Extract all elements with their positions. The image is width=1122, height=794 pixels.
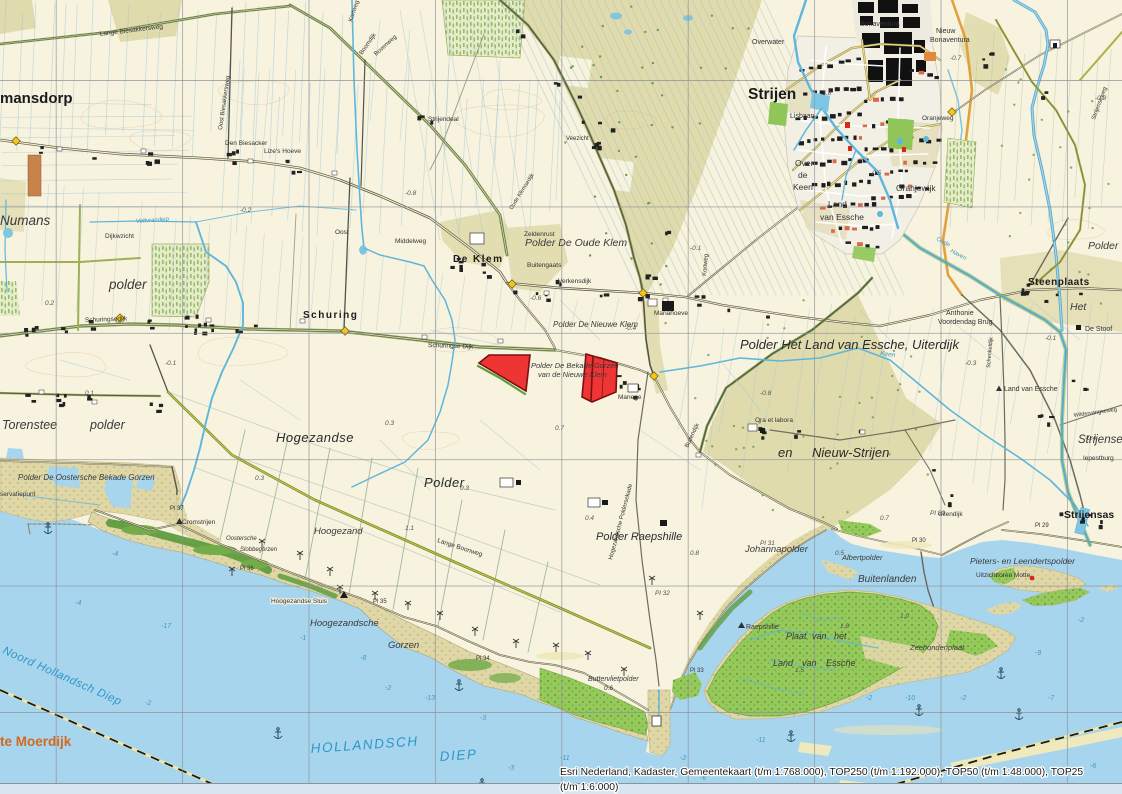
svg-text:Cromstrijen: Cromstrijen: [182, 519, 216, 526]
svg-text:-10: -10: [905, 695, 915, 702]
svg-text:Polder De Nieuwe Klem: Polder De Nieuwe Klem: [553, 320, 638, 329]
svg-text:-2: -2: [960, 695, 966, 702]
svg-text:Manege: Manege: [618, 394, 642, 401]
svg-text:Numans: Numans: [0, 213, 51, 228]
svg-text:Polder Het Land van Essche, Ui: Polder Het Land van Essche, Uiterdijk: [740, 337, 960, 352]
svg-text:-1.8: -1.8: [820, 90, 832, 97]
svg-text:0.3: 0.3: [255, 475, 264, 482]
svg-text:Buitengaats: Buitengaats: [527, 262, 562, 269]
svg-text:De Klem: De Klem: [453, 254, 504, 265]
svg-text:0.6: 0.6: [604, 685, 613, 692]
svg-text:Strijensas: Strijensas: [1064, 509, 1114, 521]
svg-text:-0.7: -0.7: [950, 55, 962, 62]
svg-text:-0.1: -0.1: [165, 360, 177, 367]
svg-text:Land: Land: [773, 658, 794, 668]
svg-text:Esri Nederland, Kadaster, Geme: Esri Nederland, Kadaster, Gemeentekaart …: [560, 767, 1083, 778]
svg-text:1.0: 1.0: [900, 613, 909, 620]
svg-text:Raepshille: Raepshille: [746, 624, 779, 631]
svg-text:Uilendijk: Uilendijk: [938, 511, 963, 518]
svg-text:1.8: 1.8: [840, 623, 849, 630]
svg-text:Veezicht: Veezicht: [566, 136, 589, 142]
svg-text:0.7: 0.7: [880, 515, 889, 522]
svg-text:Verkensdijk: Verkensdijk: [558, 278, 592, 285]
svg-text:Den Biesacker: Den Biesacker: [225, 140, 268, 147]
svg-text:Schuring: Schuring: [303, 310, 358, 321]
svg-text:Pl 36: Pl 36: [240, 566, 254, 572]
svg-text:Zeehondenplaat: Zeehondenplaat: [909, 643, 965, 652]
svg-text:-0.8: -0.8: [760, 390, 772, 397]
svg-text:de: de: [798, 170, 808, 180]
svg-text:van: van: [802, 658, 817, 668]
svg-text:Zeldenrust: Zeldenrust: [524, 231, 555, 238]
svg-text:Bonaventura: Bonaventura: [860, 21, 900, 28]
svg-text:en: en: [778, 445, 792, 460]
svg-text:-3: -3: [508, 765, 514, 772]
svg-text:Polder: Polder: [1088, 240, 1119, 252]
svg-text:Lisbaan: Lisbaan: [790, 113, 815, 120]
svg-text:-0.3: -0.3: [965, 360, 977, 367]
svg-text:Pl 32: Pl 32: [655, 590, 670, 597]
svg-text:Torenstee: Torenstee: [2, 418, 57, 432]
svg-text:0.3: 0.3: [385, 420, 394, 427]
svg-text:0.2: 0.2: [45, 300, 54, 307]
svg-text:het: het: [834, 631, 847, 641]
svg-text:-4: -4: [112, 551, 118, 558]
svg-text:Albertpolder: Albertpolder: [841, 553, 883, 562]
svg-text:Mariahoeve: Mariahoeve: [654, 310, 688, 317]
svg-text:Pl 33: Pl 33: [690, 668, 704, 674]
svg-text:Oost: Oost: [335, 229, 349, 236]
svg-text:0.8: 0.8: [690, 550, 699, 557]
svg-text:-0.8: -0.8: [405, 190, 417, 197]
svg-text:-0.1: -0.1: [690, 245, 702, 252]
svg-text:(t/m 1:6.000): (t/m 1:6.000): [560, 782, 618, 793]
svg-text:0.4: 0.4: [585, 515, 594, 522]
svg-text:-11: -11: [756, 737, 766, 744]
svg-text:Lize's Hoeve: Lize's Hoeve: [264, 148, 301, 155]
svg-text:Johannapolder: Johannapolder: [744, 544, 809, 555]
svg-text:Hoogezandsche: Hoogezandsche: [310, 618, 379, 629]
svg-text:Dijkwzicht: Dijkwzicht: [105, 233, 134, 240]
svg-text:-8: -8: [360, 655, 366, 662]
svg-text:Keen: Keen: [793, 182, 813, 192]
svg-text:Pl 30: Pl 30: [912, 538, 926, 544]
svg-text:Uitzichttoren Motte: Uitzichttoren Motte: [976, 572, 1031, 579]
svg-text:Strijendeal: Strijendeal: [428, 116, 459, 123]
svg-text:Plaat: Plaat: [786, 631, 807, 641]
svg-text:Land: Land: [828, 199, 847, 209]
svg-text:-13: -13: [425, 695, 435, 702]
svg-text:polder: polder: [89, 418, 126, 432]
svg-text:-9: -9: [1035, 650, 1041, 657]
svg-text:Slobbegorzen: Slobbegorzen: [240, 547, 278, 553]
svg-text:Land van Essche: Land van Essche: [1004, 386, 1058, 393]
svg-text:Pieters- en Leendertspolder: Pieters- en Leendertspolder: [970, 556, 1076, 566]
svg-text:-17: -17: [161, 623, 172, 630]
svg-text:-7: -7: [1048, 695, 1055, 702]
svg-text:van Essche: van Essche: [820, 212, 864, 222]
svg-text:van: van: [812, 631, 827, 641]
svg-text:DIEP: DIEP: [439, 746, 478, 764]
svg-text:1.5: 1.5: [795, 667, 804, 674]
svg-text:Oostersche: Oostersche: [226, 536, 257, 542]
svg-text:Iepestburg: Iepestburg: [1083, 455, 1114, 462]
svg-text:-1: -1: [300, 635, 306, 642]
svg-text:Polder De Oostersche Bekade Go: Polder De Oostersche Bekade Gorzen: [18, 473, 155, 482]
svg-text:-2: -2: [385, 685, 391, 692]
svg-text:Hoogezandse Sluis: Hoogezandse Sluis: [271, 598, 328, 605]
svg-text:servatiepunt: servatiepunt: [0, 491, 36, 498]
svg-text:Het: Het: [1070, 301, 1087, 313]
svg-text:-6: -6: [1090, 763, 1096, 770]
svg-text:van de Nieuwe Klem: van de Nieuwe Klem: [538, 370, 607, 379]
svg-text:0.7: 0.7: [555, 425, 564, 432]
svg-text:-0.2: -0.2: [240, 207, 252, 214]
svg-text:Hoogezand: Hoogezand: [314, 526, 363, 537]
svg-text:polder: polder: [108, 277, 147, 292]
svg-text:Oranjewijk: Oranjewijk: [896, 183, 936, 193]
svg-text:Polder De Bekade Gorzen: Polder De Bekade Gorzen: [531, 361, 619, 370]
svg-text:-2: -2: [680, 755, 686, 762]
svg-text:Nieuw-Strijen: Nieuw-Strijen: [812, 445, 889, 460]
svg-text:-0.1: -0.1: [1045, 335, 1057, 342]
svg-text:De Stoof: De Stoof: [1085, 326, 1112, 333]
svg-text:Pl 37: Pl 37: [170, 506, 184, 512]
svg-text:Polder Raepshille: Polder Raepshille: [596, 531, 682, 543]
svg-text:Anthonie: Anthonie: [946, 310, 974, 317]
svg-text:-4: -4: [75, 600, 81, 607]
svg-text:Buttervlietpolder: Buttervlietpolder: [588, 676, 639, 683]
svg-text:Pl 29: Pl 29: [1035, 523, 1049, 529]
svg-text:0.1: 0.1: [85, 390, 94, 397]
svg-text:Polder De Oude Klem: Polder De Oude Klem: [525, 237, 627, 249]
svg-text:-0.5: -0.5: [870, 170, 882, 177]
svg-text:Nieuw: Nieuw: [936, 28, 956, 35]
svg-text:Gorzen: Gorzen: [388, 640, 419, 651]
svg-text:Oranjeweg: Oranjeweg: [922, 115, 954, 122]
svg-text:Pl 35: Pl 35: [373, 599, 387, 605]
svg-text:-3: -3: [480, 715, 486, 722]
svg-text:Buitenlanden: Buitenlanden: [858, 574, 917, 585]
svg-text:Polder: Polder: [424, 475, 465, 490]
svg-text:Strijen: Strijen: [748, 86, 796, 103]
svg-text:Ora et labora: Ora et labora: [755, 417, 793, 424]
svg-text:Over: Over: [795, 158, 814, 168]
svg-text:-0.6: -0.6: [530, 295, 542, 302]
svg-text:-2: -2: [1078, 617, 1084, 624]
svg-text:Essche: Essche: [826, 658, 856, 668]
svg-text:mansdorp: mansdorp: [0, 90, 73, 107]
svg-text:Middelweg: Middelweg: [395, 238, 426, 245]
svg-text:Bonaventura: Bonaventura: [930, 37, 970, 44]
svg-text:Voordendag Brug: Voordendag Brug: [938, 319, 993, 326]
svg-text:1.1: 1.1: [405, 525, 414, 532]
svg-text:-2: -2: [866, 695, 872, 702]
svg-text:te Moerdijk: te Moerdijk: [0, 734, 72, 749]
svg-text:-2: -2: [145, 700, 151, 707]
svg-text:Overwater: Overwater: [752, 39, 785, 46]
svg-text:Pl 34: Pl 34: [476, 656, 490, 662]
svg-text:Steenplaats: Steenplaats: [1028, 277, 1090, 288]
svg-text:Hogezandse: Hogezandse: [276, 430, 354, 445]
svg-text:Strijense: Strijense: [1078, 434, 1122, 446]
